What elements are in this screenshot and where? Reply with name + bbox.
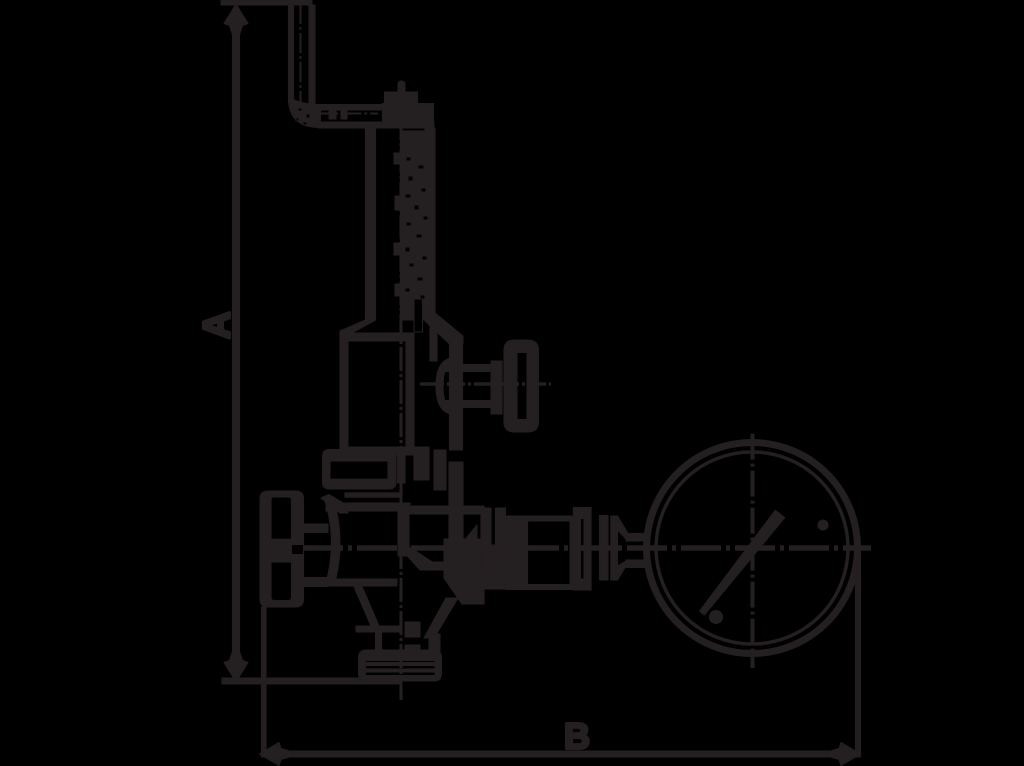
svg-text:A: A xyxy=(197,312,239,339)
svg-text:B: B xyxy=(564,716,590,757)
